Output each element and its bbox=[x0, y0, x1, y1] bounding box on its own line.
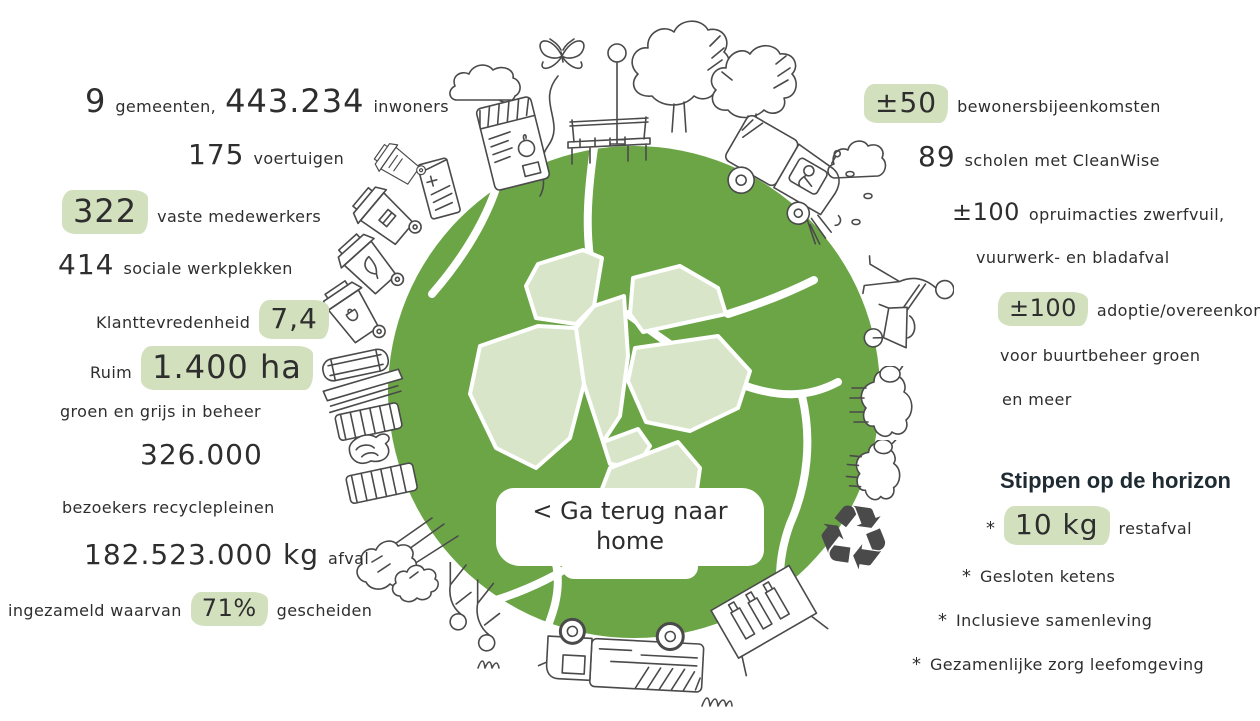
stat-afval-kg: 182.523.000 kg afval bbox=[84, 538, 369, 571]
stat-number-highlight: 322 bbox=[62, 190, 148, 234]
stat-klanttevredenheid: Klanttevredenheid 7,4 bbox=[96, 300, 329, 339]
stat-text: afval bbox=[328, 549, 369, 568]
stat-scholen-cleanwise: 89 scholen met CleanWise bbox=[918, 140, 1160, 173]
stat-vaste-medewerkers: 322 vaste medewerkers bbox=[62, 190, 321, 234]
stat-number: ±100 bbox=[952, 198, 1020, 226]
stat-text: voor buurtbeheer groen bbox=[1000, 346, 1200, 365]
horizon-zorg-leefomgeving: * Gezamenlijke zorg leefomgeving bbox=[912, 654, 1204, 675]
stat-opruimacties-vervolg: vuurwerk- en bladafval bbox=[976, 248, 1170, 267]
municipality-region bbox=[470, 326, 584, 468]
stat-adopties: ±100 adoptie/overeenkomsten bbox=[998, 292, 1260, 326]
stat-text: adoptie/overeenkomsten bbox=[1097, 301, 1260, 320]
butterfly-icon bbox=[532, 26, 592, 78]
stat-text: voertuigen bbox=[253, 149, 344, 168]
stat-text: Gesloten ketens bbox=[980, 567, 1115, 586]
stat-text: inwoners bbox=[373, 97, 449, 116]
stat-text: en meer bbox=[1002, 390, 1072, 409]
stat-text: vaste medewerkers bbox=[157, 207, 321, 226]
bullet-asterisk-icon: * bbox=[986, 518, 995, 539]
stat-number: 175 bbox=[188, 138, 244, 171]
infographic-page: < Ga terug naar home 9 gemeenten, 443.23… bbox=[0, 0, 1260, 721]
stat-text: ingezameld waarvan bbox=[8, 601, 182, 620]
stat-number-highlight: 71% bbox=[191, 592, 268, 626]
stat-gemeenten-inwoners: 9 gemeenten, 443.234 inwoners bbox=[85, 82, 449, 120]
stat-en-meer: en meer bbox=[1002, 390, 1072, 409]
sheep-icon bbox=[844, 366, 924, 438]
garbage-truck-icon bbox=[533, 608, 711, 710]
stat-number-highlight: 10 kg bbox=[1004, 506, 1110, 545]
municipality-region bbox=[576, 296, 628, 442]
stat-number: 443.234 bbox=[225, 82, 364, 120]
compost-bag-icon bbox=[465, 92, 557, 196]
stat-gescheiden: ingezameld waarvan 71% gescheiden bbox=[8, 592, 372, 626]
bulky-waste-pile-icon bbox=[322, 342, 422, 514]
stat-number: 414 bbox=[58, 248, 114, 281]
stat-voertuigen: 175 voertuigen bbox=[188, 138, 344, 171]
stat-text: sociale werkplekken bbox=[123, 259, 292, 278]
back-to-home-button[interactable]: < Ga terug naar home bbox=[496, 488, 764, 566]
horizon-heading: Stippen op de horizon bbox=[1000, 468, 1231, 494]
wheelbarrow-person-icon bbox=[834, 242, 954, 372]
grass-tuft-icon bbox=[476, 652, 504, 670]
stat-text: vuurwerk- en bladafval bbox=[976, 248, 1170, 267]
stat-bezoekers-aantal: 326.000 bbox=[140, 438, 263, 471]
stat-text: opruimacties zwerfvuil, bbox=[1029, 205, 1225, 224]
stat-groen-grijs-label: groen en grijs in beheer bbox=[60, 402, 261, 421]
stat-number: 89 bbox=[918, 140, 956, 173]
stat-opruimacties: ±100 opruimacties zwerfvuil, bbox=[952, 198, 1225, 226]
stat-sociale-werkplekken: 414 sociale werkplekken bbox=[58, 248, 293, 281]
grass-tuft-icon bbox=[700, 688, 734, 708]
stat-number-highlight: 1.400 ha bbox=[141, 346, 313, 390]
stat-number: 9 bbox=[85, 82, 106, 120]
stat-text: gescheiden bbox=[277, 601, 373, 620]
stat-number-highlight: ±100 bbox=[998, 292, 1088, 326]
stat-text: bezoekers recyclepleinen bbox=[62, 498, 275, 517]
stat-text: Gezamenlijke zorg leefomgeving bbox=[930, 655, 1204, 674]
bullet-asterisk-icon: * bbox=[962, 566, 971, 587]
stat-buurtbeheer: voor buurtbeheer groen bbox=[1000, 346, 1200, 365]
horizon-inclusieve-samenleving: * Inclusieve samenleving bbox=[938, 610, 1152, 631]
horizon-restafval: * 10 kg restafval bbox=[986, 506, 1192, 545]
municipality-region bbox=[630, 266, 726, 332]
stat-hectare-beheer: Ruim 1.400 ha bbox=[90, 346, 313, 390]
road-line bbox=[728, 280, 814, 314]
horizon-gesloten-ketens: * Gesloten ketens bbox=[962, 566, 1115, 587]
stat-text: bewonersbijeenkomsten bbox=[957, 97, 1161, 116]
stat-text: groen en grijs in beheer bbox=[60, 402, 261, 421]
bullet-asterisk-icon: * bbox=[912, 654, 921, 675]
stat-text: gemeenten, bbox=[115, 97, 216, 116]
stat-number-highlight: 7,4 bbox=[259, 300, 329, 339]
stat-text: Ruim bbox=[90, 363, 132, 382]
stat-number: 182.523.000 kg bbox=[84, 538, 319, 571]
stat-number: 326.000 bbox=[140, 438, 263, 471]
stat-bezoekers-label: bezoekers recyclepleinen bbox=[62, 498, 275, 517]
leaf-specks-icon bbox=[842, 166, 882, 236]
stat-text: scholen met CleanWise bbox=[965, 151, 1160, 170]
bullet-asterisk-icon: * bbox=[938, 610, 947, 631]
back-to-home-label: < Ga terug naar home bbox=[532, 497, 727, 555]
municipality-region bbox=[628, 336, 750, 431]
stat-text: Inclusieve samenleving bbox=[956, 611, 1152, 630]
stat-bewonersbijeenkomsten: ±50 bewonersbijeenkomsten bbox=[864, 84, 1161, 123]
stat-number-highlight: ±50 bbox=[864, 84, 948, 123]
stat-text: restafval bbox=[1119, 519, 1192, 538]
stat-text: Klanttevredenheid bbox=[96, 313, 250, 332]
glass-container-rack-icon bbox=[700, 552, 830, 677]
